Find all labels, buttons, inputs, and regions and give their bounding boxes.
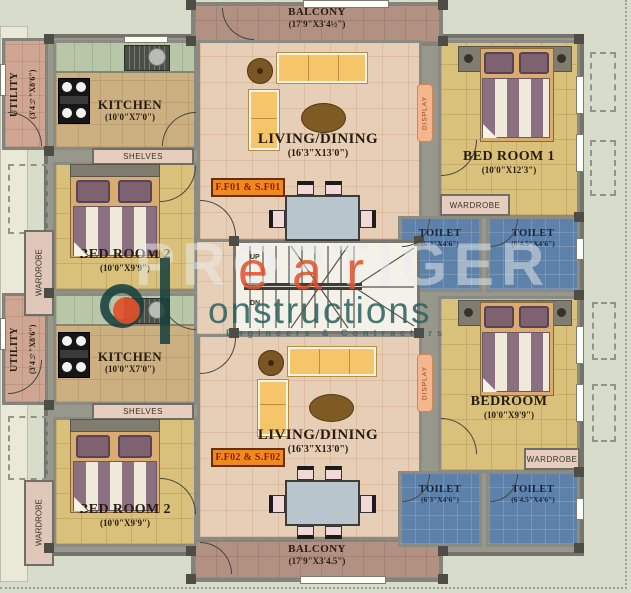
burner-icon bbox=[76, 108, 86, 118]
wardrobe-label: WARDROBE bbox=[35, 500, 44, 547]
blanket-fold-icon bbox=[483, 378, 497, 392]
flat-badge-text: F.F01 & S.F01 bbox=[215, 182, 280, 193]
dining-table-icon bbox=[285, 195, 360, 241]
chair-icon bbox=[325, 526, 342, 539]
stair-lobby-unit1 bbox=[197, 242, 235, 334]
wardrobe-unit1-side: WARDROBE bbox=[24, 230, 54, 316]
headboard-knob-icon bbox=[464, 308, 473, 317]
column bbox=[186, 36, 196, 46]
display-unit-unit1: DISPLAY bbox=[417, 84, 433, 142]
headboard-knob-icon bbox=[557, 54, 566, 63]
column bbox=[44, 543, 54, 553]
column bbox=[44, 288, 54, 298]
pillow-icon bbox=[118, 435, 152, 458]
brand-logo-stem-icon bbox=[160, 258, 170, 344]
display-label: DISPLAY bbox=[422, 366, 429, 400]
wardrobe-label: WARDROBE bbox=[35, 250, 44, 297]
display-unit-unit2: DISPLAY bbox=[417, 354, 433, 412]
pillow-icon bbox=[118, 180, 152, 203]
burner-icon bbox=[76, 336, 86, 346]
stairs-up-label: UP bbox=[250, 254, 260, 261]
headboard-knob-icon bbox=[464, 54, 473, 63]
burner-icon bbox=[62, 336, 72, 346]
blanket-fold-icon bbox=[74, 242, 88, 256]
column bbox=[186, 546, 196, 556]
chair-icon bbox=[297, 526, 314, 539]
wardrobe-label: WARDROBE bbox=[450, 201, 501, 210]
column bbox=[574, 467, 584, 477]
window-icon bbox=[576, 238, 584, 260]
window-icon bbox=[0, 318, 6, 350]
window-icon bbox=[576, 498, 584, 520]
projection-outline bbox=[8, 164, 48, 234]
wardrobe-unit2-side: WARDROBE bbox=[24, 480, 54, 566]
column bbox=[574, 212, 584, 222]
display-label: DISPLAY bbox=[422, 96, 429, 130]
projection-outline bbox=[590, 140, 616, 196]
window-icon bbox=[576, 384, 584, 422]
sofa-icon bbox=[288, 347, 376, 376]
bed-headboard-icon bbox=[70, 164, 160, 177]
stove-panel-icon bbox=[60, 350, 88, 358]
chair-icon bbox=[325, 181, 342, 195]
chair-icon bbox=[269, 210, 285, 228]
projection-outline bbox=[8, 416, 48, 480]
column bbox=[186, 0, 196, 10]
sofa-icon bbox=[249, 90, 279, 150]
chair-icon bbox=[360, 210, 376, 228]
column bbox=[438, 574, 448, 584]
pillow-icon bbox=[76, 435, 110, 458]
chair-icon bbox=[325, 466, 342, 480]
floor-plan: BALCONY (17'9"X3'4½") BALCONY (17'9"X3'4… bbox=[0, 0, 631, 593]
window-icon bbox=[576, 134, 584, 172]
window-icon bbox=[303, 0, 389, 8]
staircase bbox=[233, 240, 420, 334]
sink-basin-icon bbox=[148, 48, 166, 66]
column bbox=[44, 34, 54, 44]
bed-headboard-icon bbox=[70, 419, 160, 432]
projection-outline bbox=[590, 52, 616, 112]
column bbox=[438, 36, 448, 46]
stairs-down-label: DN bbox=[250, 300, 260, 307]
burner-icon bbox=[62, 82, 72, 92]
pillow-icon bbox=[519, 306, 549, 328]
window-icon bbox=[576, 326, 584, 364]
sofa-icon bbox=[277, 53, 367, 83]
column bbox=[414, 328, 424, 338]
wardrobe-label: WARDROBE bbox=[527, 455, 578, 464]
shelves-label: SHELVES bbox=[123, 152, 163, 161]
pillow-icon bbox=[484, 306, 514, 328]
column bbox=[574, 543, 584, 553]
wardrobe-unit2-top: WARDROBE bbox=[524, 448, 580, 470]
window-icon bbox=[0, 64, 6, 96]
projection-outline bbox=[592, 384, 616, 442]
side-table-icon bbox=[247, 58, 273, 84]
stove-panel-icon bbox=[60, 96, 88, 104]
brand-logo-disc-icon bbox=[113, 297, 140, 324]
column bbox=[574, 34, 584, 44]
column bbox=[229, 328, 239, 338]
sofa-icon bbox=[258, 380, 288, 436]
shelves-unit2: SHELVES bbox=[92, 403, 194, 420]
projection-outline bbox=[592, 302, 616, 360]
column bbox=[438, 0, 448, 10]
blanket-fold-icon bbox=[74, 497, 88, 511]
column bbox=[229, 236, 239, 246]
side-table-icon bbox=[258, 350, 284, 376]
flat-number-badge-unit2: F.F02 & S.F02 bbox=[211, 448, 285, 467]
column bbox=[574, 290, 584, 300]
headboard-knob-icon bbox=[557, 308, 566, 317]
column bbox=[44, 146, 54, 156]
burner-icon bbox=[62, 362, 72, 372]
window-icon bbox=[124, 36, 168, 43]
blanket-fold-icon bbox=[483, 124, 497, 138]
window-icon bbox=[576, 76, 584, 114]
column bbox=[186, 574, 196, 584]
dining-table-icon bbox=[285, 480, 360, 526]
chair-icon bbox=[297, 466, 314, 480]
burner-icon bbox=[76, 362, 86, 372]
column bbox=[44, 400, 54, 410]
shelves-label: SHELVES bbox=[123, 407, 163, 416]
flat-badge-text: F.F02 & S.F02 bbox=[215, 452, 280, 463]
coffee-table-icon bbox=[309, 394, 354, 422]
burner-icon bbox=[62, 108, 72, 118]
pillow-icon bbox=[519, 52, 549, 74]
pillow-icon bbox=[76, 180, 110, 203]
flat-number-badge-unit1: F.F01 & S.F01 bbox=[211, 178, 285, 197]
shelves-unit1: SHELVES bbox=[92, 148, 194, 165]
column bbox=[438, 546, 448, 556]
chair-icon bbox=[269, 495, 285, 513]
burner-icon bbox=[76, 82, 86, 92]
window-icon bbox=[300, 576, 386, 584]
chair-icon bbox=[297, 181, 314, 195]
chair-icon bbox=[360, 495, 376, 513]
pillow-icon bbox=[484, 52, 514, 74]
wardrobe-unit1-top: WARDROBE bbox=[440, 194, 510, 216]
coffee-table-icon bbox=[301, 103, 346, 133]
